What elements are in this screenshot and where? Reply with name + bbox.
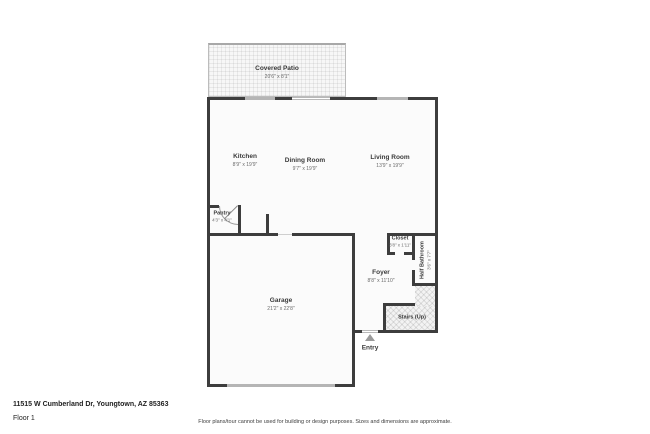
room-name: Pantry bbox=[212, 210, 232, 217]
room-dims: 4'3" x 4'1" bbox=[212, 218, 232, 224]
wall-segment bbox=[330, 97, 377, 100]
entry-label: Entry bbox=[362, 345, 379, 352]
wall-segment bbox=[335, 384, 355, 387]
room-label-kitchen: Kitchen 8'9" x 19'9" bbox=[233, 153, 258, 169]
room-label-half-bathroom: Half Bathroom 3'6" x 7'7" bbox=[419, 241, 432, 279]
wall-segment bbox=[387, 252, 395, 255]
stairs-top-wall bbox=[383, 303, 415, 306]
room-dims: 9'7" x 19'9" bbox=[285, 166, 325, 173]
room-dims: 3'8" x 1'11" bbox=[389, 243, 411, 249]
room-label-closet: Closet 3'8" x 1'11" bbox=[389, 235, 411, 248]
pantry-top-wall bbox=[207, 205, 219, 208]
room-name: Stairs (Up) bbox=[398, 314, 426, 321]
wall-left bbox=[207, 97, 210, 387]
bathroom-bottom-wall bbox=[412, 283, 438, 286]
room-label-stairs: Stairs (Up) bbox=[398, 314, 426, 321]
wall-segment bbox=[352, 330, 362, 333]
entry-door bbox=[362, 330, 378, 333]
room-label-dining-room: Dining Room 9'7" x 19'9" bbox=[285, 157, 325, 173]
bathroom-left-wall bbox=[412, 233, 415, 260]
wall-right bbox=[435, 97, 438, 333]
wall-segment bbox=[292, 233, 355, 236]
floorplan-canvas: Entry Covered Patio 20'6" x 8'1" Kitchen… bbox=[0, 0, 650, 434]
room-dims: 8'9" x 19'9" bbox=[233, 162, 258, 169]
wall-segment bbox=[408, 97, 438, 100]
wall-segment bbox=[207, 97, 245, 100]
kitchen-partition-wall bbox=[266, 214, 269, 236]
room-dims: 21'2" x 22'8" bbox=[267, 306, 294, 313]
room-name: Half Bathroom bbox=[419, 241, 426, 279]
room-name: Living Room bbox=[370, 154, 409, 163]
disclaimer-text: Floor plans/tour cannot be used for buil… bbox=[0, 419, 650, 425]
room-dims: 8'8" x 11'10" bbox=[367, 278, 394, 285]
room-label-foyer: Foyer 8'8" x 11'10" bbox=[367, 269, 394, 285]
wall-segment bbox=[275, 97, 292, 100]
room-dims: 3'6" x 7'7" bbox=[427, 241, 433, 279]
property-address: 11515 W Cumberland Dr, Youngtown, AZ 853… bbox=[13, 401, 168, 408]
room-label-pantry: Pantry 4'3" x 4'1" bbox=[212, 210, 232, 223]
room-label-living-room: Living Room 13'9" x 19'9" bbox=[370, 154, 409, 170]
doorway-threshold bbox=[278, 234, 292, 235]
garage-door bbox=[227, 384, 335, 387]
room-name: Kitchen bbox=[233, 153, 258, 162]
garage-right-wall bbox=[352, 233, 355, 387]
room-dims: 13'9" x 19'9" bbox=[370, 163, 409, 170]
wall-segment bbox=[207, 384, 227, 387]
room-dims: 20'6" x 8'1" bbox=[255, 74, 299, 81]
room-name: Closet bbox=[389, 235, 411, 242]
patio-sliding-door bbox=[292, 97, 330, 100]
living-room-window bbox=[377, 97, 408, 100]
room-name: Foyer bbox=[367, 269, 394, 278]
entry-arrow-icon bbox=[365, 334, 375, 341]
wall-segment bbox=[386, 330, 438, 333]
room-name: Covered Patio bbox=[255, 65, 299, 74]
room-label-garage: Garage 21'2" x 22'8" bbox=[267, 297, 294, 313]
stairs-left-wall bbox=[383, 303, 386, 333]
room-name: Garage bbox=[267, 297, 294, 306]
kitchen-window bbox=[245, 97, 275, 100]
room-label-covered-patio: Covered Patio 20'6" x 8'1" bbox=[255, 65, 299, 81]
room-name: Dining Room bbox=[285, 157, 325, 166]
pantry-right-wall bbox=[238, 205, 241, 236]
